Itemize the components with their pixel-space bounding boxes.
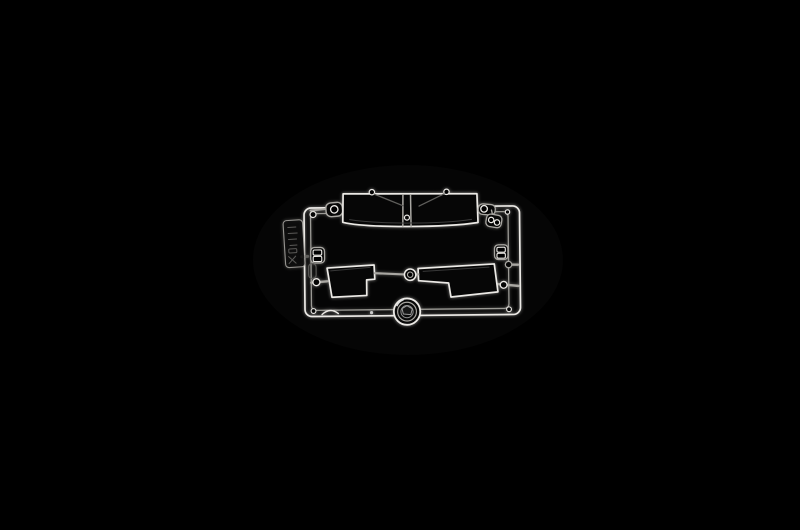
sprue-photo xyxy=(0,0,800,530)
photo-canvas xyxy=(0,0,800,530)
